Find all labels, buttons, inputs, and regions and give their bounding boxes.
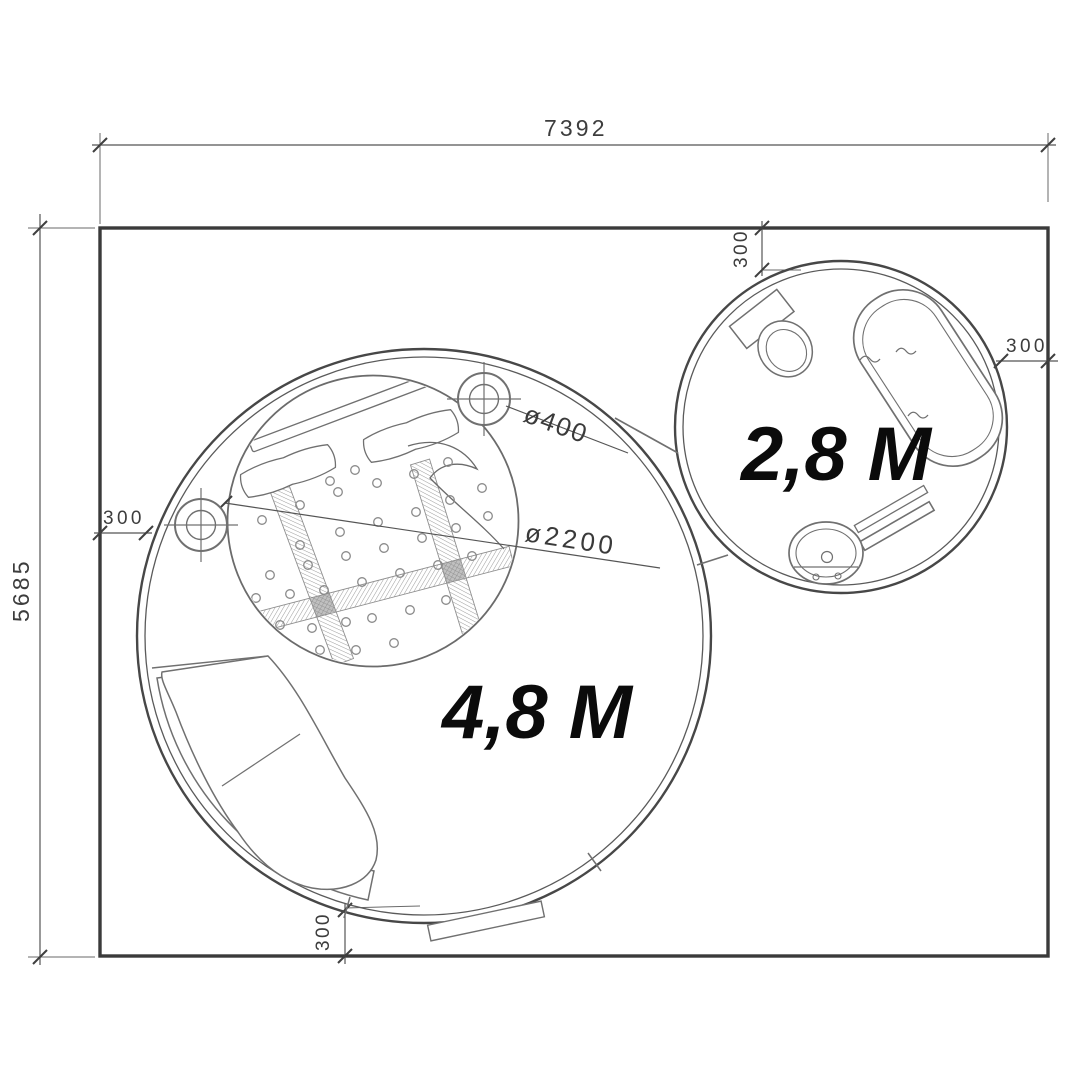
overall-height-label: 5685 <box>8 562 34 622</box>
round-bed: ø2200 <box>218 374 660 667</box>
bed-dot <box>390 639 399 648</box>
floor-plan-page: 7392 5685 300 300 300 300 <box>0 0 1080 1080</box>
entrance-door <box>344 853 601 941</box>
floor-plan-drawing: 7392 5685 300 300 300 300 <box>0 0 1080 1080</box>
bed-dot <box>373 479 382 488</box>
bed-dot <box>342 618 351 627</box>
offset-left-label: 300 <box>103 508 141 529</box>
bed-dot <box>351 466 360 475</box>
bed-dot <box>342 552 351 561</box>
bed-dot <box>352 646 361 655</box>
bed-dot <box>368 614 377 623</box>
bed-dot <box>478 484 487 493</box>
bed-dot <box>412 508 421 517</box>
offset-right-label: 300 <box>1006 336 1044 357</box>
entrance-step <box>428 901 545 941</box>
bed-dot <box>452 524 461 533</box>
offset-top-label: 300 <box>731 232 752 268</box>
bed-dot <box>258 516 267 525</box>
bed-dot <box>308 624 317 633</box>
bed-dot <box>326 477 335 486</box>
bed-dot <box>484 512 493 521</box>
bed-dot <box>334 488 343 497</box>
bed-diameter-label: ø2200 <box>523 517 615 560</box>
overall-width-label: 7392 <box>544 115 604 141</box>
small-room-label: 2,8 M <box>739 412 933 497</box>
large-room-label: 4,8 M <box>440 670 634 755</box>
bed-dot <box>336 528 345 537</box>
dimension-offset-left: 300 <box>93 508 153 540</box>
bed-dot <box>442 596 451 605</box>
toilet <box>730 289 827 390</box>
offset-bottom-label: 300 <box>313 915 334 951</box>
sink <box>789 522 863 584</box>
bed-dot <box>266 571 275 580</box>
sofa <box>152 656 377 900</box>
column-diameter-label: ø400 <box>520 398 590 448</box>
bed-dot <box>418 534 427 543</box>
dimension-overall-height: 5685 <box>8 214 95 965</box>
bed-dot <box>380 544 389 553</box>
dimension-overall-width: 7392 <box>92 115 1056 224</box>
bed-dot <box>406 606 415 615</box>
bed-dot <box>316 646 325 655</box>
bed-dot <box>252 594 261 603</box>
bed-pillow-right <box>360 406 462 466</box>
bed-dot <box>296 501 305 510</box>
sink-basin <box>789 522 863 584</box>
column-diameter-dimension: ø400 <box>506 398 628 453</box>
bed-stripes <box>255 459 514 665</box>
column-marker-left <box>164 488 238 562</box>
bed-dot <box>286 590 295 599</box>
